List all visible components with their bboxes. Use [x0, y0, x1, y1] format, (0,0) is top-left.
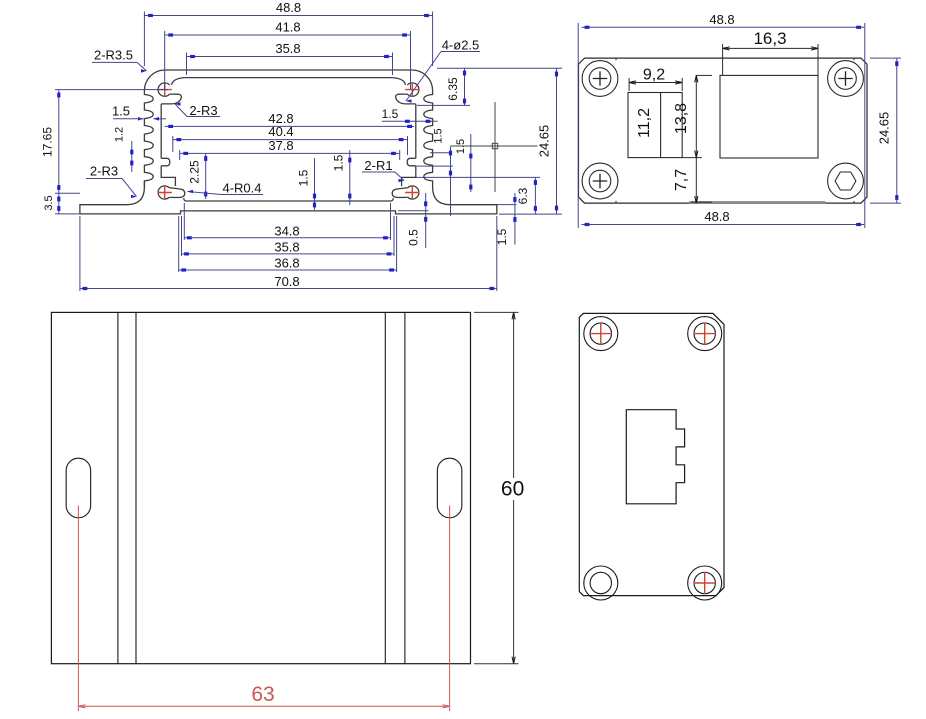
svg-text:17.65: 17.65	[41, 127, 55, 157]
svg-text:6.35: 6.35	[446, 77, 460, 101]
svg-text:63: 63	[251, 683, 274, 706]
svg-text:9,2: 9,2	[643, 67, 665, 84]
svg-text:1.5: 1.5	[112, 104, 130, 119]
svg-text:35.8: 35.8	[274, 239, 299, 254]
svg-text:60: 60	[501, 478, 524, 501]
svg-text:48.8: 48.8	[704, 209, 729, 224]
svg-text:16,3: 16,3	[753, 29, 786, 48]
svg-text:2-R3.5: 2-R3.5	[94, 48, 133, 63]
svg-text:34.8: 34.8	[274, 223, 299, 238]
svg-text:24.65: 24.65	[537, 125, 552, 158]
svg-text:1.5: 1.5	[382, 107, 399, 121]
svg-text:36.8: 36.8	[274, 256, 299, 271]
svg-text:1.2: 1.2	[114, 127, 126, 142]
svg-text:70.8: 70.8	[274, 274, 299, 289]
svg-text:0.5: 0.5	[407, 229, 421, 246]
svg-text:4-R0.4: 4-R0.4	[222, 181, 261, 196]
svg-text:1.5: 1.5	[433, 128, 445, 143]
svg-text:4-ø2.5: 4-ø2.5	[442, 38, 480, 53]
svg-text:11,2: 11,2	[636, 108, 653, 138]
svg-text:35.8: 35.8	[275, 41, 300, 56]
svg-text:3.5: 3.5	[43, 195, 55, 210]
svg-text:48.8: 48.8	[276, 0, 301, 15]
svg-text:48.8: 48.8	[709, 12, 734, 27]
svg-text:40.4: 40.4	[268, 124, 293, 139]
svg-text:24.65: 24.65	[876, 112, 891, 145]
svg-text:2-R3: 2-R3	[189, 103, 217, 118]
svg-text:2-R1: 2-R1	[364, 158, 392, 173]
svg-text:6.3: 6.3	[516, 187, 530, 204]
svg-text:41.8: 41.8	[275, 20, 300, 35]
svg-text:2.25: 2.25	[187, 160, 201, 184]
svg-text:2-R3: 2-R3	[90, 164, 118, 179]
svg-text:7,7: 7,7	[673, 169, 690, 191]
svg-text:1.5: 1.5	[332, 154, 346, 171]
svg-text:37.8: 37.8	[268, 138, 293, 153]
svg-text:1.5: 1.5	[297, 169, 311, 186]
svg-text:13,8: 13,8	[673, 103, 690, 134]
